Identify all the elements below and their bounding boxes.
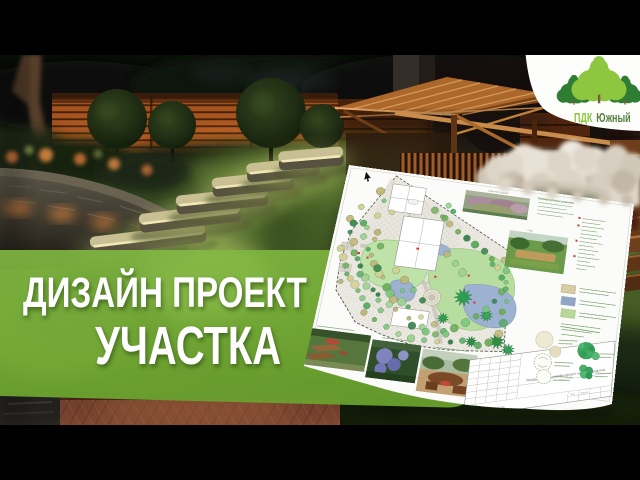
svg-text:Южный: Южный (596, 112, 630, 126)
svg-text:ПДК: ПДК (574, 112, 593, 126)
